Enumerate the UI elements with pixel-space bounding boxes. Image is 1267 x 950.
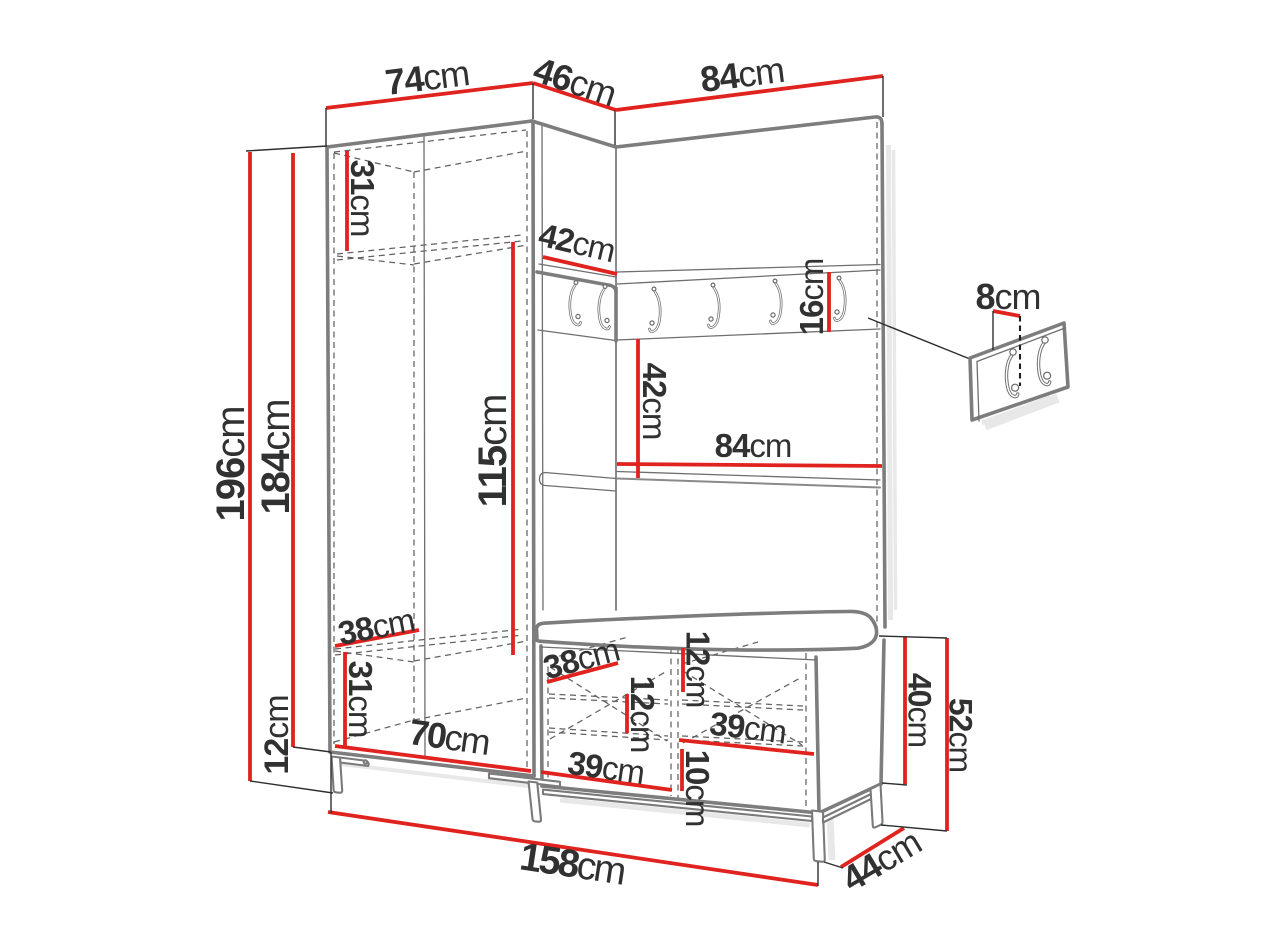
svg-text:196cm: 196cm xyxy=(209,406,253,521)
svg-text:42cm: 42cm xyxy=(637,363,674,440)
svg-text:12cm: 12cm xyxy=(258,695,296,774)
svg-text:84cm: 84cm xyxy=(715,427,792,464)
svg-text:31cm: 31cm xyxy=(345,160,382,237)
svg-text:10cm: 10cm xyxy=(680,750,717,827)
svg-text:184cm: 184cm xyxy=(254,399,298,514)
svg-text:12cm: 12cm xyxy=(625,676,662,753)
svg-text:40cm: 40cm xyxy=(902,673,938,747)
svg-text:16cm: 16cm xyxy=(793,259,830,336)
svg-text:8cm: 8cm xyxy=(975,276,1040,317)
svg-text:12cm: 12cm xyxy=(680,631,717,708)
svg-text:31cm: 31cm xyxy=(343,661,380,738)
svg-text:115cm: 115cm xyxy=(471,395,515,508)
svg-text:52cm: 52cm xyxy=(943,698,979,772)
